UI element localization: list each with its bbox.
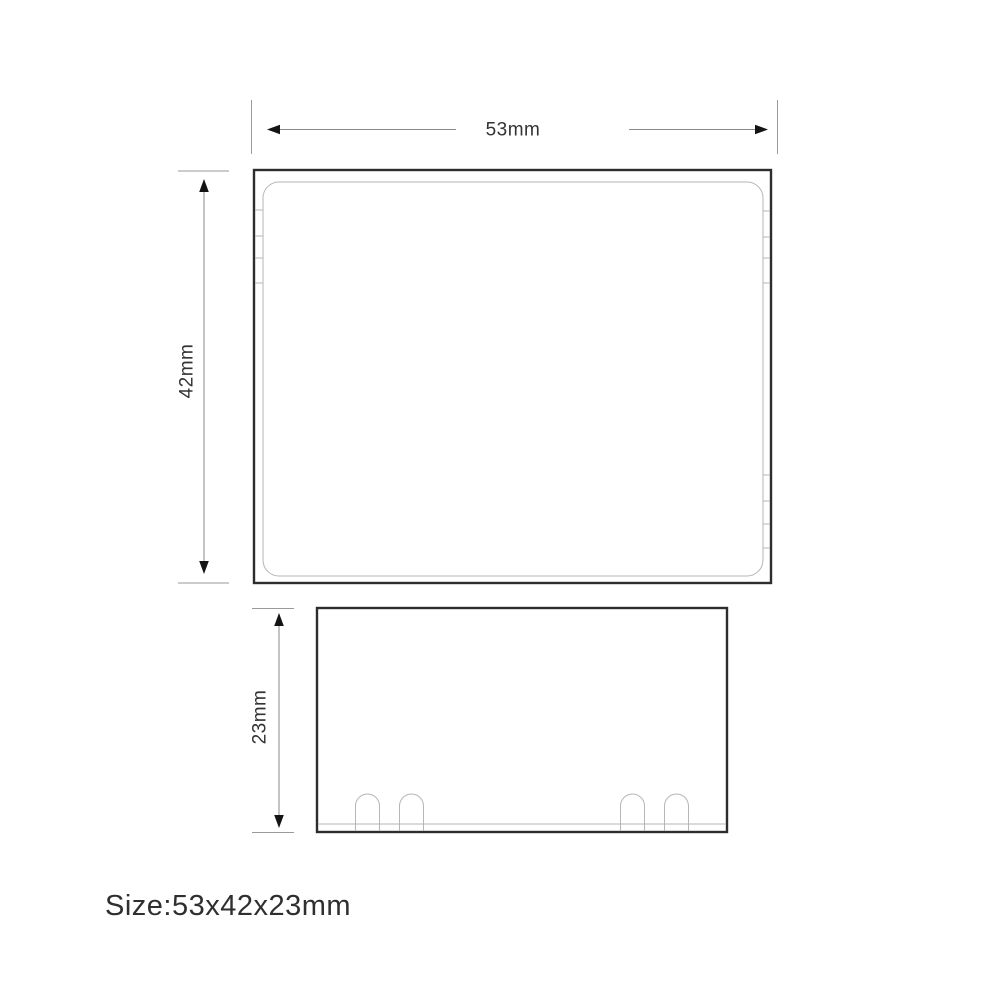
arrowhead-up-icon <box>199 179 209 192</box>
arrowhead-down-icon <box>199 561 209 574</box>
top-view-outline <box>254 170 771 583</box>
front-view-outline <box>317 608 727 832</box>
width-dimension: 53mm <box>252 100 778 154</box>
arrowhead-right-icon <box>755 125 768 135</box>
depth-dimension-label: 23mm <box>250 690 271 745</box>
dimension-diagram: 53mm 42mm 23mm <box>0 0 1000 1000</box>
width-dimension-label: 53mm <box>486 120 541 141</box>
arrowhead-up-icon <box>274 613 284 626</box>
height-dimension: 42mm <box>177 171 230 583</box>
size-caption: Size:53x42x23mm <box>105 890 351 922</box>
front-view <box>317 608 727 832</box>
height-dimension-label: 42mm <box>177 344 198 399</box>
diagram-canvas: 53mm 42mm 23mm <box>0 0 1000 1000</box>
arrowhead-down-icon <box>274 815 284 828</box>
arrowhead-left-icon <box>267 125 280 135</box>
depth-dimension: 23mm <box>250 609 295 833</box>
top-view <box>254 170 771 583</box>
